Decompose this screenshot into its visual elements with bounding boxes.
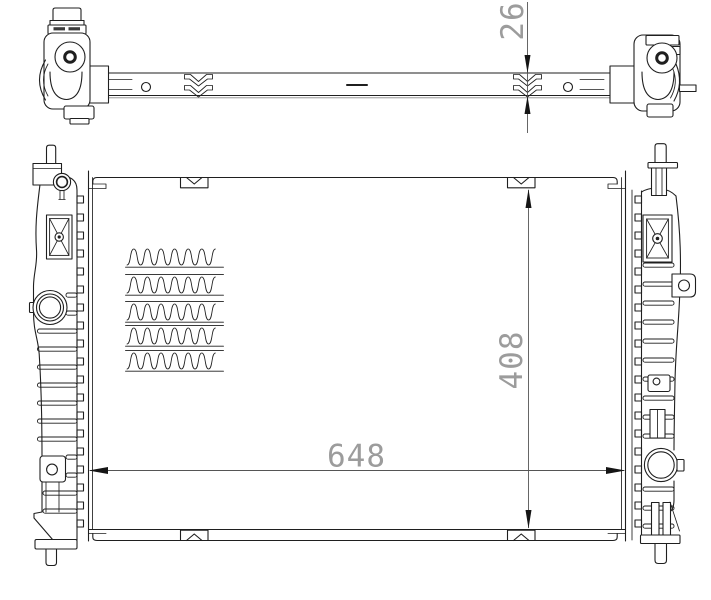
header-tab [77,358,84,365]
right-side-pin [680,85,697,92]
tank-rib [38,347,78,351]
tank-rib [643,263,674,267]
left-tank [30,145,84,565]
top-view [40,8,697,124]
front-view [30,144,696,566]
right-top-flange [648,163,678,169]
right-tank [632,144,696,564]
dimension-width-arrow-right [606,467,626,474]
header-tab [77,394,84,401]
right-top-pin [655,144,666,163]
header-tab [77,214,84,221]
header-tab [635,340,642,347]
dimension-thickness-arrow-up [525,96,531,114]
tank-rib [38,383,78,387]
header-tab [77,232,84,239]
tank-rib [643,282,674,286]
header-tab [635,358,642,365]
fin-row-wave [127,277,215,293]
dimension-height-arrow-bottom [526,510,532,529]
left-foot [35,540,77,550]
header-tab [635,232,642,239]
tank-rib [38,401,78,405]
bottom-bar-notch-right [508,530,536,540]
core-top-bar [89,178,626,189]
right-top-block [652,168,667,196]
left-mount-bracket [40,456,66,482]
header-tab [77,340,84,347]
left-lower-legs [46,482,59,512]
fin-row-wave [127,249,215,265]
fin-row-wave [127,353,215,369]
dimension-thickness-arrow-down [525,55,531,73]
header-tab [635,376,642,383]
tank-rib [643,487,674,491]
dimension-height-arrow-top [526,189,532,208]
tank-rib [66,473,77,477]
header-tab [77,304,84,311]
top-view-hole-right [564,83,573,92]
tank-rib [38,419,78,423]
right-leg-a [652,503,660,536]
tank-rib [643,358,674,362]
header-tab [635,466,642,473]
header-tab [635,250,642,257]
header-tab [635,286,642,293]
header-tab [77,520,84,527]
header-tab [77,448,84,455]
dimension-thickness-value: 26 [495,1,531,40]
tank-rib [38,329,78,333]
left-top-pin [47,145,56,164]
core-frame [89,171,626,541]
technical-drawing-page: 648 408 [0,0,711,600]
header-tab [77,376,84,383]
left-x-brace-bracket [47,215,73,259]
top-view-right-outlet [580,35,696,117]
header-tab [635,394,642,401]
right-tank-ribs [643,263,674,528]
tank-rib [43,509,77,513]
dimension-width-value: 648 [327,439,386,475]
right-channel [650,410,665,439]
header-tab [635,322,642,329]
header-tab [77,286,84,293]
tank-rib [66,455,77,459]
tank-rib [643,320,674,324]
header-tab [635,520,642,527]
dimension-height: 408 [494,189,532,529]
header-tab [635,448,642,455]
bottom-bar-notch-left [181,530,209,540]
header-tab [77,502,84,509]
right-outlet-port [644,448,684,481]
dimension-thickness: 26 [495,1,531,133]
dimension-width: 648 [89,439,626,475]
right-header-tabs [635,196,642,527]
header-tab [635,304,642,311]
header-tab [635,430,642,437]
left-inlet-port [30,291,68,325]
fin-row-wave [127,304,215,320]
top-bar-notch-left [181,178,209,188]
dimension-height-value: 408 [494,331,530,390]
tank-rib [643,301,674,305]
right-leg-b [663,503,671,536]
tank-rib [38,365,78,369]
header-tab [77,268,84,275]
right-mount-tab [672,274,696,297]
right-bottom-pin [655,544,667,564]
header-tab [635,484,642,491]
header-tab [77,484,84,491]
header-tab [77,466,84,473]
header-tab [77,430,84,437]
right-x-brace-bracket [643,215,672,262]
tank-rib [66,311,77,315]
right-connector [610,66,637,103]
left-small-port-stem [59,191,65,200]
right-diagonal-brace [670,502,680,531]
dimension-width-arrow-left [89,467,109,474]
header-tab [77,412,84,419]
header-tab [77,322,84,329]
header-tab [635,196,642,203]
left-header-tabs [77,196,84,527]
tank-rib [643,339,674,343]
left-bottom-pin [46,549,57,566]
header-tab [635,412,642,419]
top-view-core-bar [104,73,612,98]
header-tab [635,268,642,275]
header-tab [77,250,84,257]
fin-row-wave [127,328,215,344]
top-view-left-inlet [40,8,133,124]
tank-rib [643,396,674,400]
right-foot [641,535,681,544]
radiator-technical-drawing: 648 408 [0,0,711,600]
expansion-joint [185,75,213,87]
header-tab [635,214,642,221]
core-fins [126,249,224,371]
top-view-hole-left [142,83,151,92]
top-bar-notch-right [508,178,536,188]
tank-rib [38,437,78,441]
header-tab [635,502,642,509]
core-bottom-bar [89,530,626,541]
right-screw-bracket [648,375,670,392]
header-tab [77,196,84,203]
tank-rib [43,491,77,495]
tank-rib [66,293,77,297]
